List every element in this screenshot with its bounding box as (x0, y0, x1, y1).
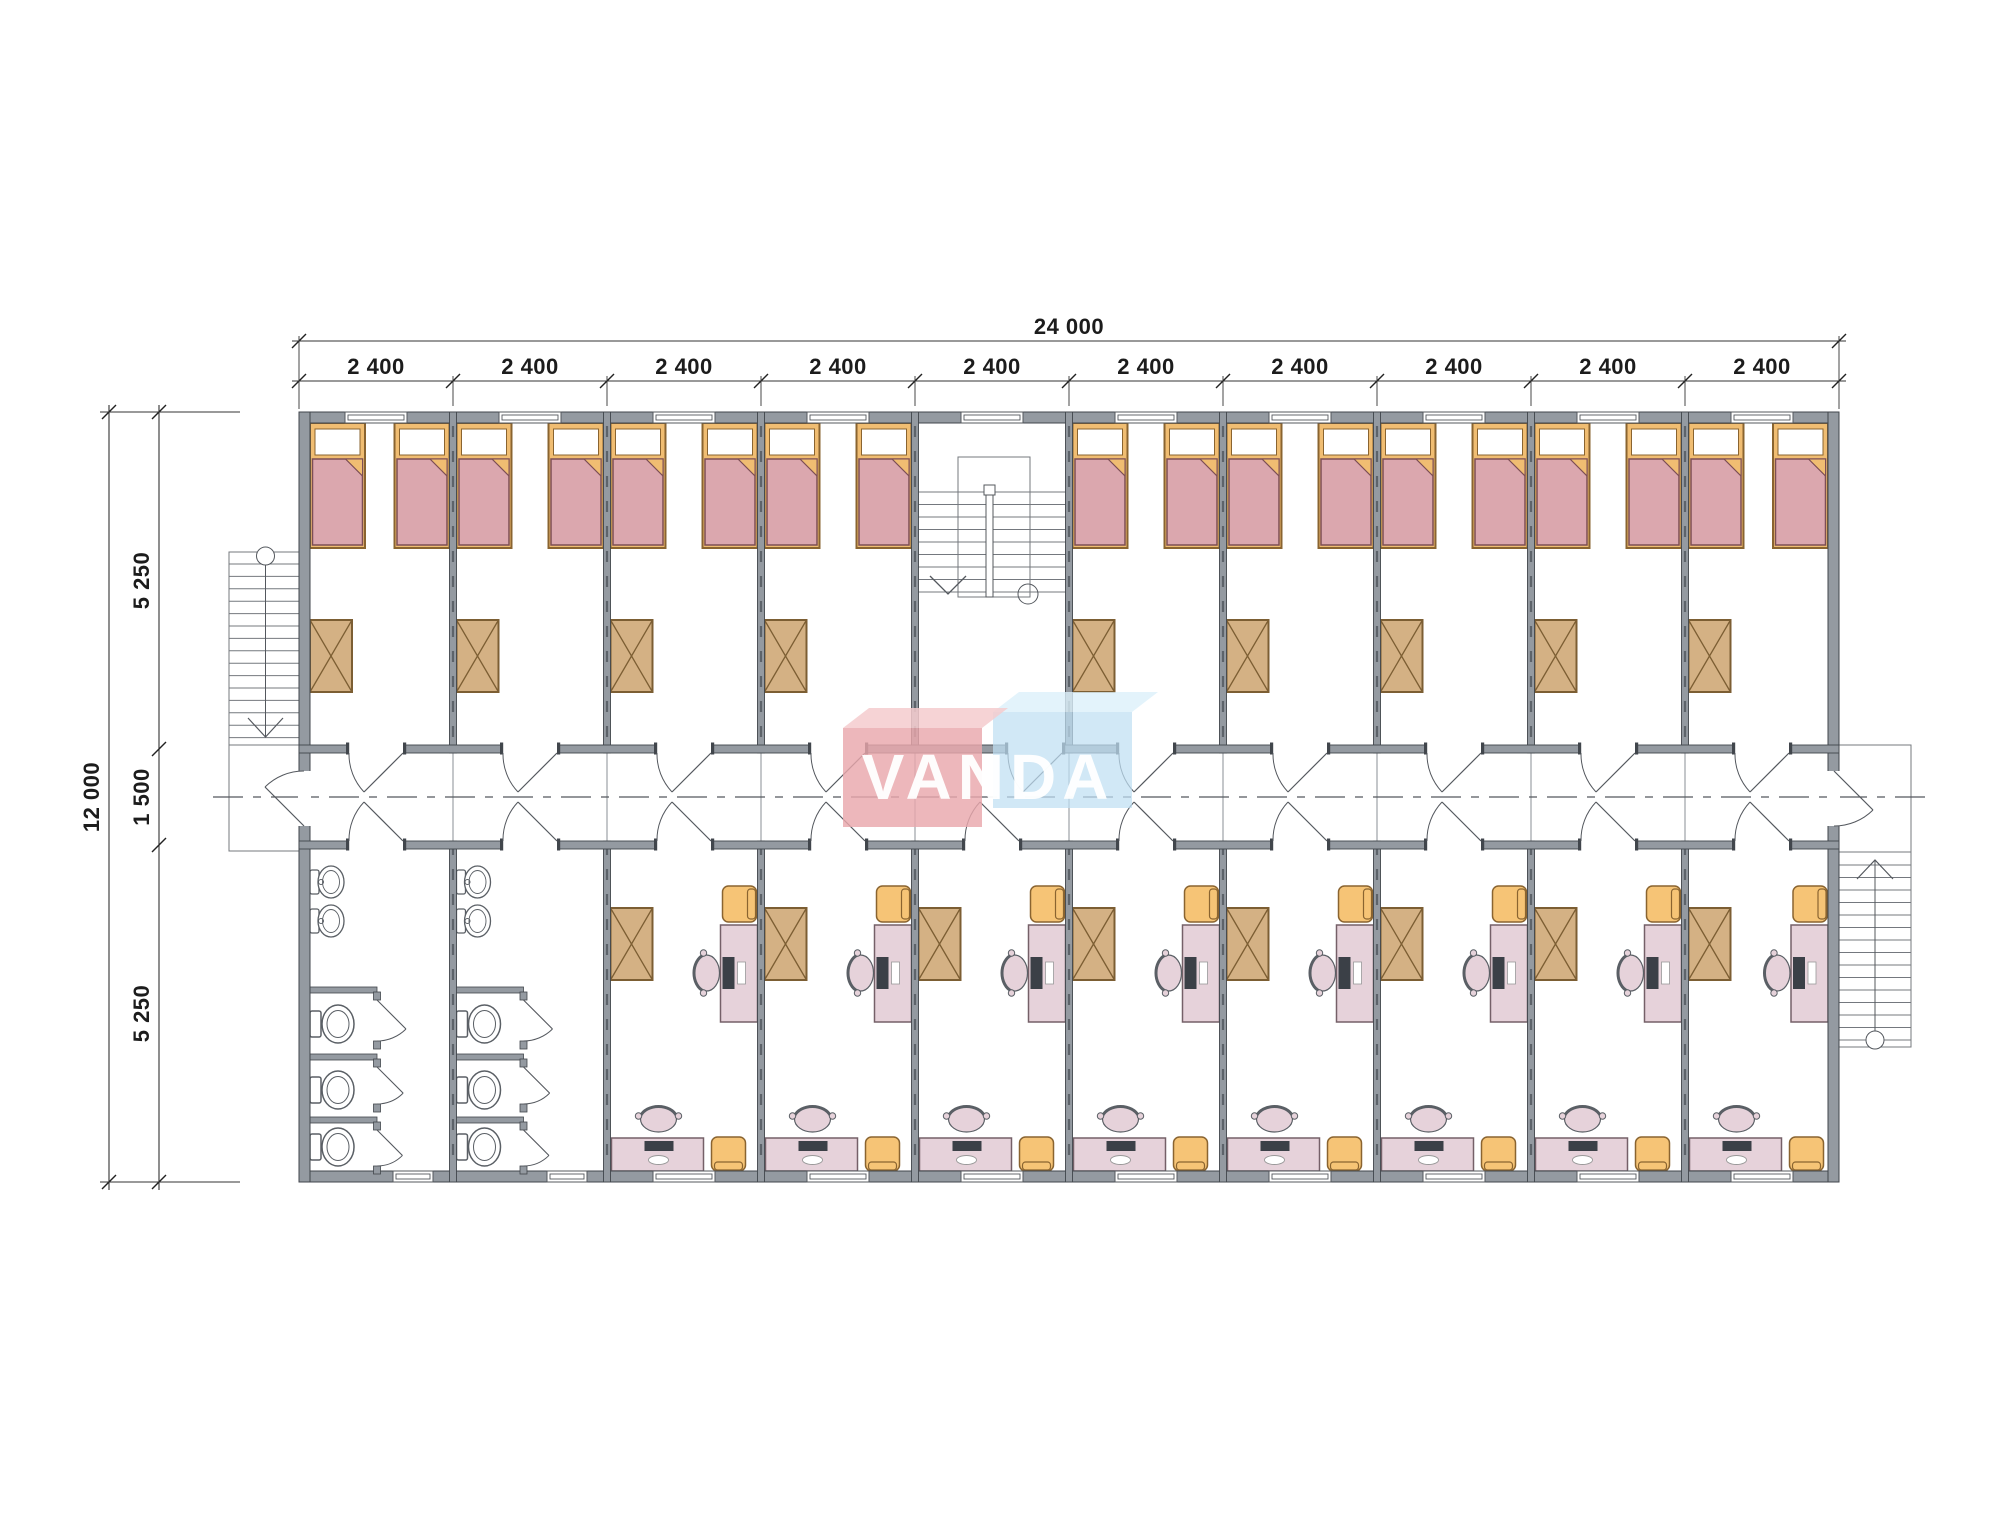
table-symbol (1381, 620, 1423, 692)
bed-symbol (1319, 423, 1374, 548)
dim-bay-3: 2 400 (655, 354, 713, 379)
table-symbol (919, 908, 961, 980)
dim-bay-7: 2 400 (1271, 354, 1329, 379)
door-opening (1270, 743, 1330, 755)
desk-unit (1156, 886, 1220, 1022)
door-symbol (349, 753, 403, 792)
desk-unit (1382, 1106, 1516, 1171)
office-chair-symbol (848, 950, 874, 996)
stall-door (374, 992, 406, 1049)
door-symbol (657, 753, 711, 792)
office-chair-symbol (694, 950, 720, 996)
floor-plan: 24 0002 4002 4002 4002 4002 4002 4002 40… (0, 0, 2000, 1520)
watermark-layer: VANDA (843, 692, 1158, 827)
dim-bay-8: 2 400 (1425, 354, 1483, 379)
armchair-symbol (1636, 1137, 1670, 1171)
table-symbol (457, 620, 499, 692)
page: 24 0002 4002 4002 4002 4002 4002 4002 40… (0, 0, 2000, 1520)
dim-bay-9: 2 400 (1579, 354, 1637, 379)
bed-symbol (457, 423, 512, 548)
dim-bay-6: 2 400 (1117, 354, 1175, 379)
office-chair-symbol (1097, 1106, 1143, 1132)
dim-zone-front: 5 250 (129, 552, 154, 610)
stall-wall (455, 1054, 524, 1060)
stall-door (520, 992, 552, 1049)
bed-symbol (310, 423, 365, 548)
door-symbol (1273, 802, 1327, 841)
toilet-symbol (310, 1071, 354, 1109)
stall-wall (308, 1054, 377, 1060)
window-symbol (1115, 1171, 1177, 1182)
desk-unit (1764, 886, 1828, 1022)
stall-door (520, 1059, 550, 1112)
door-symbol (1581, 802, 1635, 841)
door-opening (500, 839, 560, 851)
table-symbol (1073, 620, 1115, 692)
brand-watermark: VANDA (843, 692, 1158, 827)
office-chair-symbol (1713, 1106, 1759, 1132)
armchair-symbol (1793, 886, 1827, 922)
window-symbol (653, 1171, 715, 1182)
dim-bay-5: 2 400 (963, 354, 1021, 379)
window-symbol (653, 412, 715, 423)
desk-unit (1310, 886, 1374, 1022)
desk-unit (1464, 886, 1528, 1022)
table-symbol (1535, 908, 1577, 980)
office-chair-symbol (1464, 950, 1490, 996)
armchair-symbol (1185, 886, 1219, 922)
office-chair-symbol (1156, 950, 1182, 996)
bed-symbol (1073, 423, 1128, 548)
armchair-symbol (712, 1137, 746, 1171)
bed-symbol (703, 423, 758, 548)
window-symbol (345, 412, 407, 423)
window-symbol (807, 412, 869, 423)
dim-zone-back: 5 250 (129, 985, 154, 1043)
window-symbol (961, 412, 1023, 423)
window-symbol (1269, 1171, 1331, 1182)
door-symbol (657, 802, 711, 841)
door-symbol (1581, 753, 1635, 792)
bed-symbol (611, 423, 666, 548)
window-symbol (1731, 412, 1793, 423)
bed-symbol (1627, 423, 1682, 548)
bay-5 (919, 886, 1066, 1171)
table-symbol (1689, 908, 1731, 980)
table-symbol (1689, 620, 1731, 692)
toilet-symbol (457, 1071, 501, 1109)
staircase-right (1839, 745, 1911, 1049)
sink-symbol (457, 905, 491, 937)
dim-bay-2: 2 400 (501, 354, 559, 379)
office-chair-symbol (1002, 950, 1028, 996)
table-symbol (765, 620, 807, 692)
dim-bay-10: 2 400 (1733, 354, 1791, 379)
door-symbol (1735, 802, 1789, 841)
armchair-symbol (1339, 886, 1373, 922)
stall-wall (308, 987, 377, 993)
armchair-symbol (1493, 886, 1527, 922)
stall-wall (455, 987, 524, 993)
desk-unit (1002, 886, 1066, 1022)
door-opening (298, 771, 311, 826)
staircase-left (229, 547, 302, 851)
bed-symbol (1689, 423, 1744, 548)
sink-symbol (310, 866, 344, 898)
office-chair-symbol (789, 1106, 835, 1132)
desk-unit (694, 886, 758, 1022)
door-symbol (1273, 753, 1327, 792)
door-symbol (1427, 753, 1481, 792)
door-opening (654, 839, 714, 851)
office-chair-symbol (1310, 950, 1336, 996)
window-symbol (1577, 1171, 1639, 1182)
door-opening (1424, 839, 1484, 851)
dim-overall-width: 24 000 (1034, 314, 1104, 339)
armchair-symbol (723, 886, 757, 922)
armchair-symbol (877, 886, 911, 922)
door-opening (962, 839, 1022, 851)
sink-symbol (457, 866, 491, 898)
toilet-symbol (457, 1005, 501, 1043)
window-symbol (961, 1171, 1023, 1182)
office-chair-symbol (635, 1106, 681, 1132)
brand-watermark-text: VANDA (862, 741, 1115, 813)
bed-symbol (1773, 423, 1828, 548)
armchair-symbol (1174, 1137, 1208, 1171)
desk-unit (1618, 886, 1682, 1022)
window-symbol (1731, 1171, 1793, 1182)
armchair-symbol (1482, 1137, 1516, 1171)
desk-unit (1690, 1106, 1824, 1171)
window-symbol (393, 1171, 433, 1182)
door-opening (1827, 771, 1840, 826)
door-opening (1578, 743, 1638, 755)
table-symbol (611, 908, 653, 980)
door-opening (1732, 743, 1792, 755)
window-symbol (1577, 412, 1639, 423)
office-chair-symbol (943, 1106, 989, 1132)
table-symbol (611, 620, 653, 692)
dim-bay-4: 2 400 (809, 354, 867, 379)
stall-wall (308, 1117, 377, 1123)
toilet-symbol (310, 1005, 354, 1043)
toilet-symbol (457, 1128, 501, 1166)
dim-zone-corridor: 1 500 (129, 768, 154, 826)
armchair-symbol (1328, 1137, 1362, 1171)
staircase-top (919, 457, 1066, 604)
table-symbol (1381, 908, 1423, 980)
desk-unit (1228, 1106, 1362, 1171)
door-opening (346, 743, 406, 755)
door-opening (1270, 839, 1330, 851)
dim-bay-1: 2 400 (347, 354, 405, 379)
door-symbol (1427, 802, 1481, 841)
door-opening (1732, 839, 1792, 851)
armchair-symbol (1647, 886, 1681, 922)
door-opening (500, 743, 560, 755)
bed-symbol (1381, 423, 1436, 548)
office-chair-symbol (1251, 1106, 1297, 1132)
door-opening (808, 839, 868, 851)
door-symbol (1735, 753, 1789, 792)
stall-door (374, 1059, 404, 1112)
window-symbol (1269, 412, 1331, 423)
bed-symbol (1165, 423, 1220, 548)
door-symbol (503, 753, 557, 792)
window-symbol (499, 412, 561, 423)
window-symbol (547, 1171, 587, 1182)
office-chair-symbol (1764, 950, 1790, 996)
door-opening (346, 839, 406, 851)
office-chair-symbol (1559, 1106, 1605, 1132)
bed-symbol (1535, 423, 1590, 548)
armchair-symbol (1790, 1137, 1824, 1171)
stall-door (520, 1122, 549, 1174)
bed-symbol (395, 423, 450, 548)
door-symbol (503, 802, 557, 841)
door-symbol (349, 802, 403, 841)
table-symbol (1227, 620, 1269, 692)
bed-symbol (549, 423, 604, 548)
window-symbol (1423, 1171, 1485, 1182)
desk-unit (766, 1106, 900, 1171)
door-opening (1578, 839, 1638, 851)
door-opening (654, 743, 714, 755)
door-opening (1424, 743, 1484, 755)
desk-unit (1074, 1106, 1208, 1171)
table-symbol (1535, 620, 1577, 692)
office-chair-symbol (1405, 1106, 1451, 1132)
stall-wall (455, 1117, 524, 1123)
armchair-symbol (866, 1137, 900, 1171)
desk-unit (1536, 1106, 1670, 1171)
table-symbol (1227, 908, 1269, 980)
desk-unit (848, 886, 912, 1022)
desk-unit (612, 1106, 746, 1171)
office-chair-symbol (1618, 950, 1644, 996)
dim-overall-depth: 12 000 (79, 762, 104, 832)
window-symbol (807, 1171, 869, 1182)
stall-door (374, 1122, 403, 1174)
bed-symbol (1473, 423, 1528, 548)
armchair-symbol (1031, 886, 1065, 922)
bed-symbol (765, 423, 820, 548)
door-opening (1116, 839, 1176, 851)
table-symbol (765, 908, 807, 980)
desk-unit (920, 1106, 1054, 1171)
sink-symbol (310, 905, 344, 937)
armchair-symbol (1020, 1137, 1054, 1171)
toilet-symbol (310, 1128, 354, 1166)
table-symbol (1073, 908, 1115, 980)
bed-symbol (857, 423, 912, 548)
window-symbol (1115, 412, 1177, 423)
table-symbol (310, 620, 352, 692)
bed-symbol (1227, 423, 1282, 548)
window-symbol (1423, 412, 1485, 423)
